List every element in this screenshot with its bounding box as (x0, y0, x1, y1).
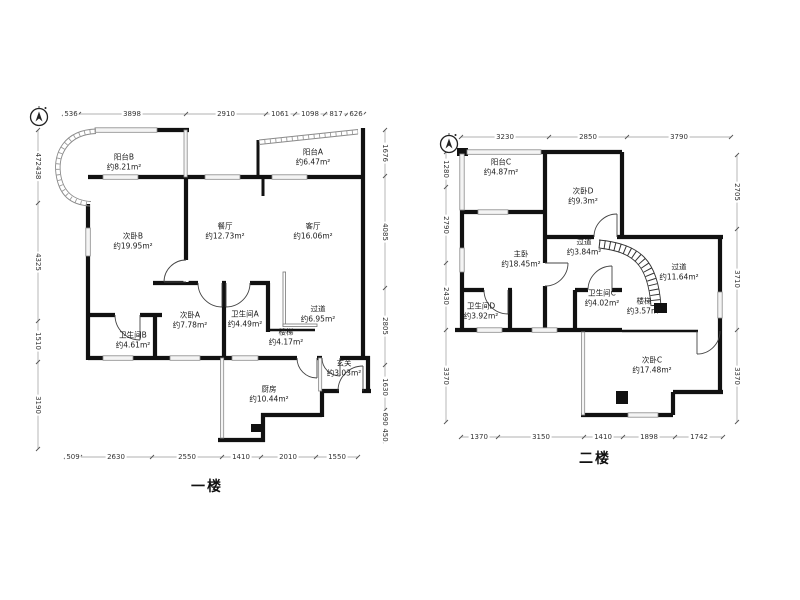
door-arc (545, 263, 568, 286)
dim-label: 1410 (593, 433, 614, 441)
dim-label: 472438 (34, 151, 42, 181)
dim-label: 536 (63, 110, 79, 118)
room-label-bedroom-b: 次卧B约19.95m² (113, 231, 152, 251)
dim-label: 2705 (733, 182, 741, 203)
room-label-bathroom-a: 卫生间A约4.49m² (228, 309, 263, 329)
floor2-plan (441, 133, 740, 439)
floorplan-canvas: 阳台B约8.21m² 阳台A约6.47m² 次卧B约19.95m² 餐厅约12.… (0, 0, 800, 600)
door-arc (594, 214, 617, 237)
floor1-plan (31, 106, 388, 459)
dim-label: 1280 (442, 159, 450, 180)
room-label-bedroom-c: 次卧C约17.48m² (632, 355, 671, 375)
room-label-balcony-b: 阳台B约8.21m² (107, 152, 142, 172)
dim-label: 1510 (34, 331, 42, 352)
door-arc (164, 260, 186, 282)
dim-label: 2790 (442, 215, 450, 236)
compass-icon (441, 133, 458, 153)
door-arc (588, 266, 612, 290)
room-label-balcony-c: 阳台C约4.87m² (484, 157, 519, 177)
dim-label: 3230 (495, 133, 516, 141)
dim-label: 1630 (381, 377, 389, 398)
dim-label: 3150 (531, 433, 552, 441)
dim-label: 509 (65, 453, 81, 461)
door-arc (226, 283, 250, 307)
dim-label: 626 (348, 110, 364, 118)
room-label-living: 客厅约16.06m² (293, 221, 332, 241)
dim-label: 3710 (733, 269, 741, 290)
dim-label: 3190 (34, 395, 42, 416)
room-label-balcony-a: 阳台A约6.47m² (296, 147, 331, 167)
dim-label: 1061 (270, 110, 291, 118)
room-label-kitchen: 厨房约10.44m² (249, 384, 288, 404)
room-label-bedroom-a: 次卧A约7.78m² (173, 310, 208, 330)
room-label-foyer: 玄关约3.03m² (327, 358, 362, 378)
dim-label: 3898 (122, 110, 143, 118)
room-label-bathroom-c: 卫生间C约4.02m² (585, 288, 620, 308)
dim-label: 690 (381, 411, 389, 427)
room-label-stairs-f2: 楼梯约3.57m² (627, 296, 662, 316)
dim-label: 1676 (381, 143, 389, 164)
dim-label: 2850 (578, 133, 599, 141)
dim-label: 1098 (300, 110, 321, 118)
compass-icon (31, 106, 48, 126)
room-label-bathroom-b: 卫生间B约4.61m² (116, 330, 151, 350)
room-label-dining: 餐厅约12.73m² (205, 221, 244, 241)
room-label-corridor-f1: 过道约6.95m² (301, 304, 336, 324)
floor1-title: 一楼 (191, 476, 223, 496)
door-arc (198, 283, 222, 307)
floorplan-drawing (0, 0, 800, 600)
dim-label: 3370 (442, 366, 450, 387)
dim-label: 1410 (231, 453, 252, 461)
dim-label: 4085 (381, 222, 389, 243)
dim-label: 2630 (106, 453, 127, 461)
dim-label: 1742 (689, 433, 710, 441)
room-label-stairs-f1: 楼梯约4.17m² (269, 327, 304, 347)
floor2-title: 二楼 (579, 448, 611, 468)
dim-label: 2550 (177, 453, 198, 461)
dim-label: 2805 (381, 316, 389, 337)
dim-label: 3790 (669, 133, 690, 141)
dim-label: 1370 (469, 433, 490, 441)
dim-label: 817 (328, 110, 344, 118)
room-label-master: 主卧约18.45m² (501, 249, 540, 269)
dim-label: 1550 (327, 453, 348, 461)
room-label-bathroom-d: 卫生间D约3.92m² (464, 301, 499, 321)
door-arc (697, 331, 720, 354)
dim-label: 450 (381, 427, 389, 443)
dim-label: 2430 (442, 286, 450, 307)
room-label-corridor-small: 过道约3.84m² (567, 237, 602, 257)
dim-label: 2910 (216, 110, 237, 118)
dim-label: 2010 (278, 453, 299, 461)
dim-label: 4325 (34, 252, 42, 273)
room-label-corridor-large: 过道约11.64m² (659, 262, 698, 282)
room-label-bedroom-d: 次卧D约9.3m² (568, 186, 598, 206)
dim-label: 1898 (639, 433, 660, 441)
dim-label: 3370 (733, 366, 741, 387)
